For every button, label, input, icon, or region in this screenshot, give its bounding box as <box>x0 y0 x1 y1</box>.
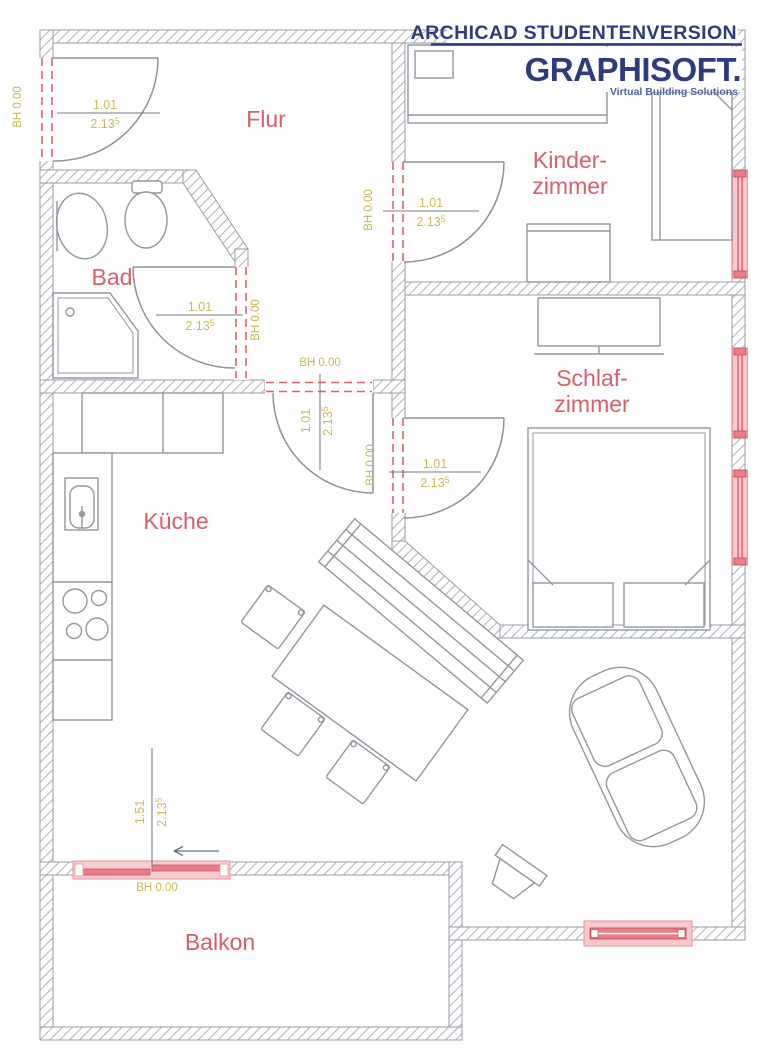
room-label-balkon: Balkon <box>185 929 255 955</box>
wohnen-width-label: 1.01 <box>299 409 313 433</box>
entrance-sill-label: BH 0.00 <box>12 86 24 128</box>
door-kinder <box>404 162 504 262</box>
wardrobe <box>534 298 664 354</box>
dining-chair-1 <box>241 585 305 649</box>
shower <box>53 293 138 378</box>
bad-sill-label: BH 0.00 <box>250 299 262 341</box>
bad-height-label: 2.135 <box>185 318 214 333</box>
entrance-height-label: 2.135 <box>90 116 119 131</box>
wall-flur-south-b <box>373 380 405 393</box>
schlaf-width-label: 1.01 <box>423 457 447 471</box>
toilet <box>125 181 167 248</box>
wall-bad-diagonal <box>183 170 248 262</box>
bathroom-sink <box>51 189 114 264</box>
door-bad <box>133 267 235 368</box>
window-schlafzimmer-2 <box>732 470 748 565</box>
door-schlaf <box>404 418 504 518</box>
plant <box>481 845 547 907</box>
room-label-kueche: Küche <box>143 508 208 534</box>
room-label-kinderzimmer: Kinder-zimmer <box>532 147 608 199</box>
wohnen-height-label: 2.135 <box>320 406 335 435</box>
balkon-sill-label: BH 0.00 <box>136 882 178 894</box>
wall-bad-north <box>40 170 196 183</box>
schlaf-height-label: 2.135 <box>420 475 449 490</box>
balkon-height-label: 2.135 <box>154 797 169 826</box>
sofa <box>556 654 717 860</box>
window-schlafzimmer-1 <box>732 348 748 438</box>
kitchen-sink <box>65 478 98 530</box>
kinder-height-label: 2.135 <box>416 214 445 229</box>
wall-flur-south-a <box>40 380 265 393</box>
app-title: ARCHICAD STUDENTENVERSION <box>411 22 737 44</box>
schlaf-sill-label: BH 0.00 <box>365 444 377 486</box>
room-label-bad: Bad <box>92 264 133 290</box>
kinder-sill-label: BH 0.00 <box>363 189 375 231</box>
wall-balcony-bottom <box>40 1027 462 1040</box>
wall-balcony-right <box>449 862 462 1040</box>
wall-kinder-south <box>405 282 745 295</box>
slide-arrow <box>174 847 219 856</box>
entrance-width-label: 1.01 <box>93 98 117 112</box>
logo-tagline: Virtual Building Solutions <box>610 86 738 98</box>
kinder-width-label: 1.01 <box>419 196 443 210</box>
window-wohnzimmer <box>584 921 692 946</box>
balkon-width-label: 1.51 <box>133 800 147 824</box>
bad-width-label: 1.01 <box>188 300 212 314</box>
wohnen-sill-label: BH 0.00 <box>299 357 341 369</box>
window-kinderzimmer <box>732 170 748 278</box>
graphisoft-logo: GRAPHISOFT. <box>525 51 741 88</box>
kinder-sideboard <box>527 224 610 282</box>
room-label-flur: Flur <box>246 106 286 132</box>
kitchen-cabinets-top <box>82 393 223 453</box>
kinder-desk <box>652 92 732 240</box>
floor-plan-page: 1.01 2.135 BH 0.00 1.01 2.135 BH 0.00 1.… <box>0 0 768 1064</box>
floor-plan-canvas: 1.01 2.135 BH 0.00 1.01 2.135 BH 0.00 1.… <box>0 0 768 1064</box>
room-label-schlafzimmer: Schlaf-zimmer <box>554 365 630 417</box>
wall-bad-east-stub <box>235 249 248 269</box>
double-bed <box>528 428 710 630</box>
